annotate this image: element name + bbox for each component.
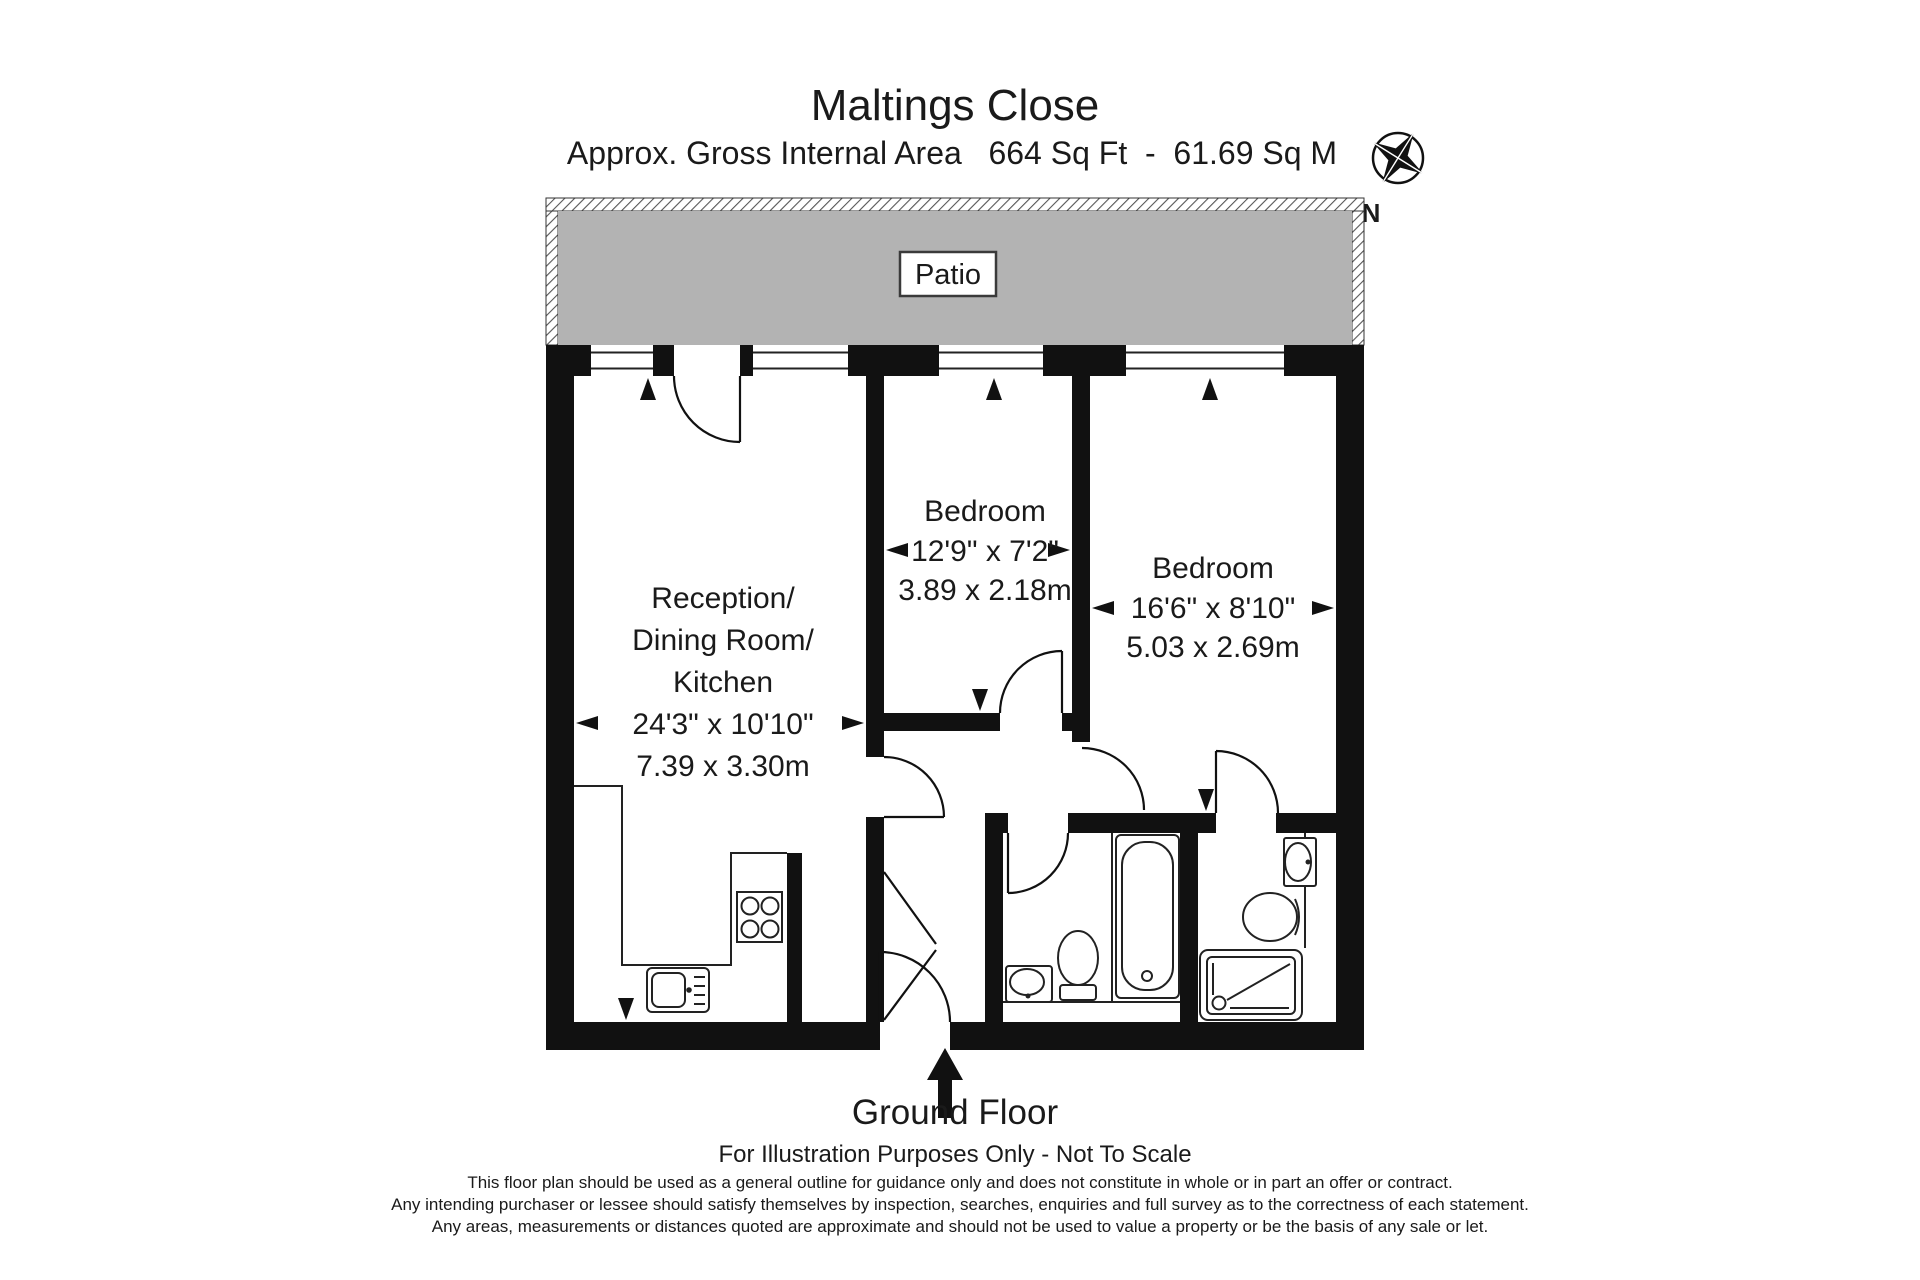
kitchen <box>574 786 787 1012</box>
floor-label: Ground Floor <box>852 1093 1059 1132</box>
disclaimer-line: Any areas, measurements or distances quo… <box>432 1217 1489 1236</box>
room-name: Bedroom <box>1152 552 1274 585</box>
dimension-arrow-left <box>886 543 908 557</box>
wall-bathroom-west <box>985 833 1003 1022</box>
entrance-opening <box>880 1022 950 1050</box>
room-name: Kitchen <box>673 666 773 699</box>
window <box>753 345 848 376</box>
patio-label: Patio <box>915 259 981 291</box>
bathtub-icon <box>1116 835 1179 998</box>
dimension-arrows <box>576 378 1334 1020</box>
room-name: Dining Room/ <box>632 624 814 657</box>
toilet-icon <box>1058 931 1098 1000</box>
door-swing-patio <box>674 376 740 442</box>
door-swing-bathroom <box>1008 833 1068 893</box>
room-dimensions-imperial: 12'9" x 7'2" <box>911 535 1059 568</box>
room-dimensions-imperial: 24'3" x 10'10" <box>632 708 813 741</box>
compass-icon <box>1357 117 1440 200</box>
washbasin-icon <box>1006 966 1052 1002</box>
disclaimer: This floor plan should be used as a gene… <box>391 1173 1529 1236</box>
room-labels: Reception/ Dining Room/ Kitchen 24'3" x … <box>632 495 1300 783</box>
reception-label: Reception/ Dining Room/ Kitchen 24'3" x … <box>632 582 814 783</box>
room-dimensions-imperial: 16'6" x 8'10" <box>1131 592 1296 625</box>
kitchen-sink-icon <box>647 968 709 1012</box>
dimension-arrow-up <box>986 378 1002 400</box>
window <box>591 345 653 376</box>
dimension-arrow-right <box>1312 601 1334 615</box>
patio-door-opening <box>674 345 740 376</box>
door-swing-reception-hall <box>884 757 944 817</box>
patio-area: Patio <box>546 198 1364 345</box>
washbasin-icon <box>1284 838 1316 886</box>
disclaimer-line: Any intending purchaser or lessee should… <box>391 1195 1529 1214</box>
wall-bathroom-ensuite <box>1180 813 1198 1022</box>
dimension-arrow-down <box>618 998 634 1020</box>
wall-bottom <box>546 1022 1364 1050</box>
window <box>1126 345 1284 376</box>
bathroom <box>1003 833 1180 1002</box>
wall-bedroom1-bottom-a <box>884 713 1000 731</box>
walls <box>546 345 1364 1050</box>
wall-bedroom1-bottom-b <box>1062 713 1072 731</box>
wall-bedroom1-bedroom2 <box>1072 376 1090 742</box>
bedroom2-label: Bedroom 16'6" x 8'10" 5.03 x 2.69m <box>1126 552 1299 664</box>
wall-hall-cupboard <box>866 817 884 1022</box>
wall-left <box>546 345 574 1050</box>
dimension-arrow-down <box>972 689 988 711</box>
dimension-arrow-right <box>842 716 864 730</box>
scale-note: For Illustration Purposes Only - Not To … <box>718 1141 1191 1168</box>
toilet-icon <box>1243 893 1299 941</box>
wall-ensuite-top <box>1276 813 1336 833</box>
dimension-arrow-up <box>640 378 656 400</box>
ensuite <box>1200 833 1316 1020</box>
room-dimensions-metric: 7.39 x 3.30m <box>636 750 809 783</box>
wall-right <box>1336 345 1364 1050</box>
patio-hatch-left <box>546 211 558 345</box>
page-title: Maltings Close <box>811 81 1100 130</box>
dimension-arrow-up <box>1202 378 1218 400</box>
bedroom1-label: Bedroom 12'9" x 7'2" 3.89 x 2.18m <box>898 495 1071 607</box>
wall-kitchen <box>787 853 802 1022</box>
floorplan-page: Maltings Close Approx. Gross Internal Ar… <box>0 0 1920 1280</box>
hob-icon <box>737 892 782 942</box>
dimension-arrow-left <box>576 716 598 730</box>
door-swing-bedroom1 <box>1000 651 1062 713</box>
room-name: Reception/ <box>651 582 795 615</box>
room-dimensions-metric: 3.89 x 2.18m <box>898 574 1071 607</box>
dimension-arrow-down <box>1198 789 1214 811</box>
cupboard-doors <box>884 872 936 1020</box>
patio-hatch-right <box>1352 211 1364 345</box>
disclaimer-line: This floor plan should be used as a gene… <box>467 1173 1452 1192</box>
wall-reception-bedroom1 <box>866 376 884 757</box>
dimension-arrow-left <box>1092 601 1114 615</box>
room-dimensions-metric: 5.03 x 2.69m <box>1126 631 1299 664</box>
wall-bathroom-top-a <box>985 813 1008 833</box>
shower-icon <box>1200 950 1302 1020</box>
door-swing-bedroom2 <box>1082 748 1144 810</box>
floorplan-canvas: Maltings Close Approx. Gross Internal Ar… <box>0 0 1920 1280</box>
window <box>939 345 1043 376</box>
door-swing-ensuite <box>1216 751 1278 813</box>
room-name: Bedroom <box>924 495 1046 528</box>
patio-hatch-top <box>546 198 1364 211</box>
page-subtitle: Approx. Gross Internal Area 664 Sq Ft - … <box>567 135 1337 171</box>
